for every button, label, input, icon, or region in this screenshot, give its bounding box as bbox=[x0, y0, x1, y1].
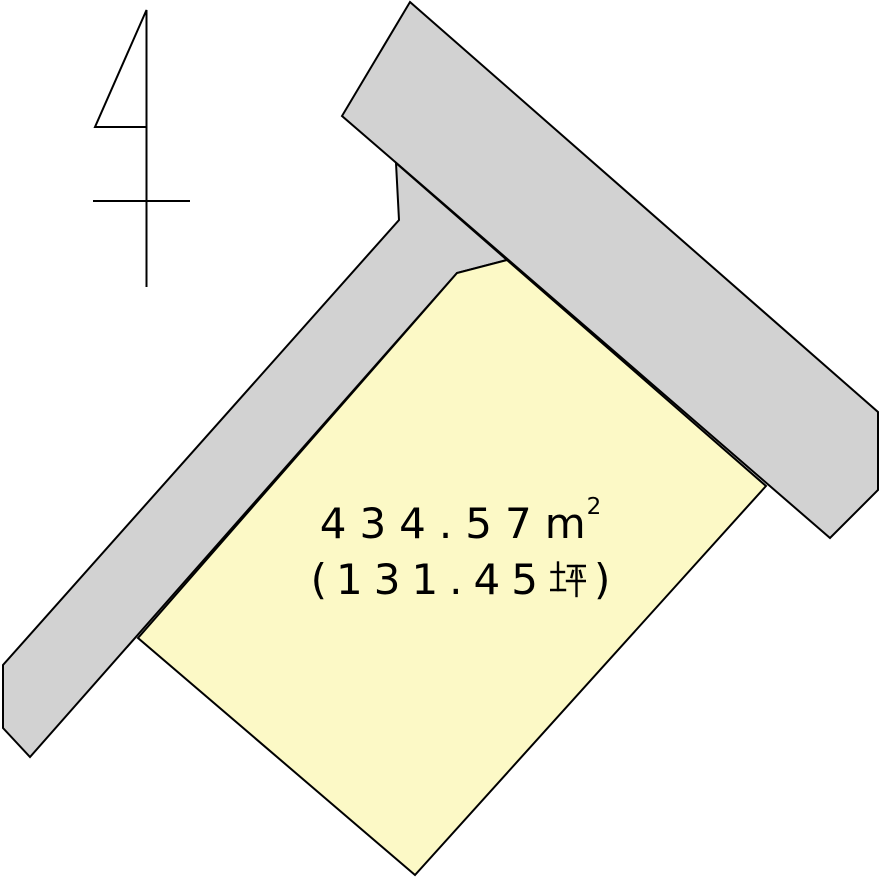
parcel-area-sqm-label: 434.57m2 bbox=[40, 483, 881, 548]
north-arrow-triangle bbox=[95, 10, 147, 127]
area-sqm-unit: m bbox=[545, 499, 586, 548]
site-plan-drawing bbox=[0, 0, 881, 877]
north-arrow-icon bbox=[93, 10, 190, 287]
parcel-area-tsubo-label: (131.45 ) bbox=[40, 556, 881, 604]
site-plan-canvas: 434.57m2 (131.45 ) bbox=[0, 0, 881, 877]
area-tsubo-value: 131.45 bbox=[336, 555, 549, 604]
tsubo-open-paren: ( bbox=[311, 555, 327, 604]
area-sqm-unit-exponent: 2 bbox=[587, 494, 602, 520]
area-sqm-value: 434.57 bbox=[320, 499, 545, 548]
tsubo-kanji-icon bbox=[550, 560, 586, 598]
tsubo-close-paren: ) bbox=[594, 555, 610, 604]
